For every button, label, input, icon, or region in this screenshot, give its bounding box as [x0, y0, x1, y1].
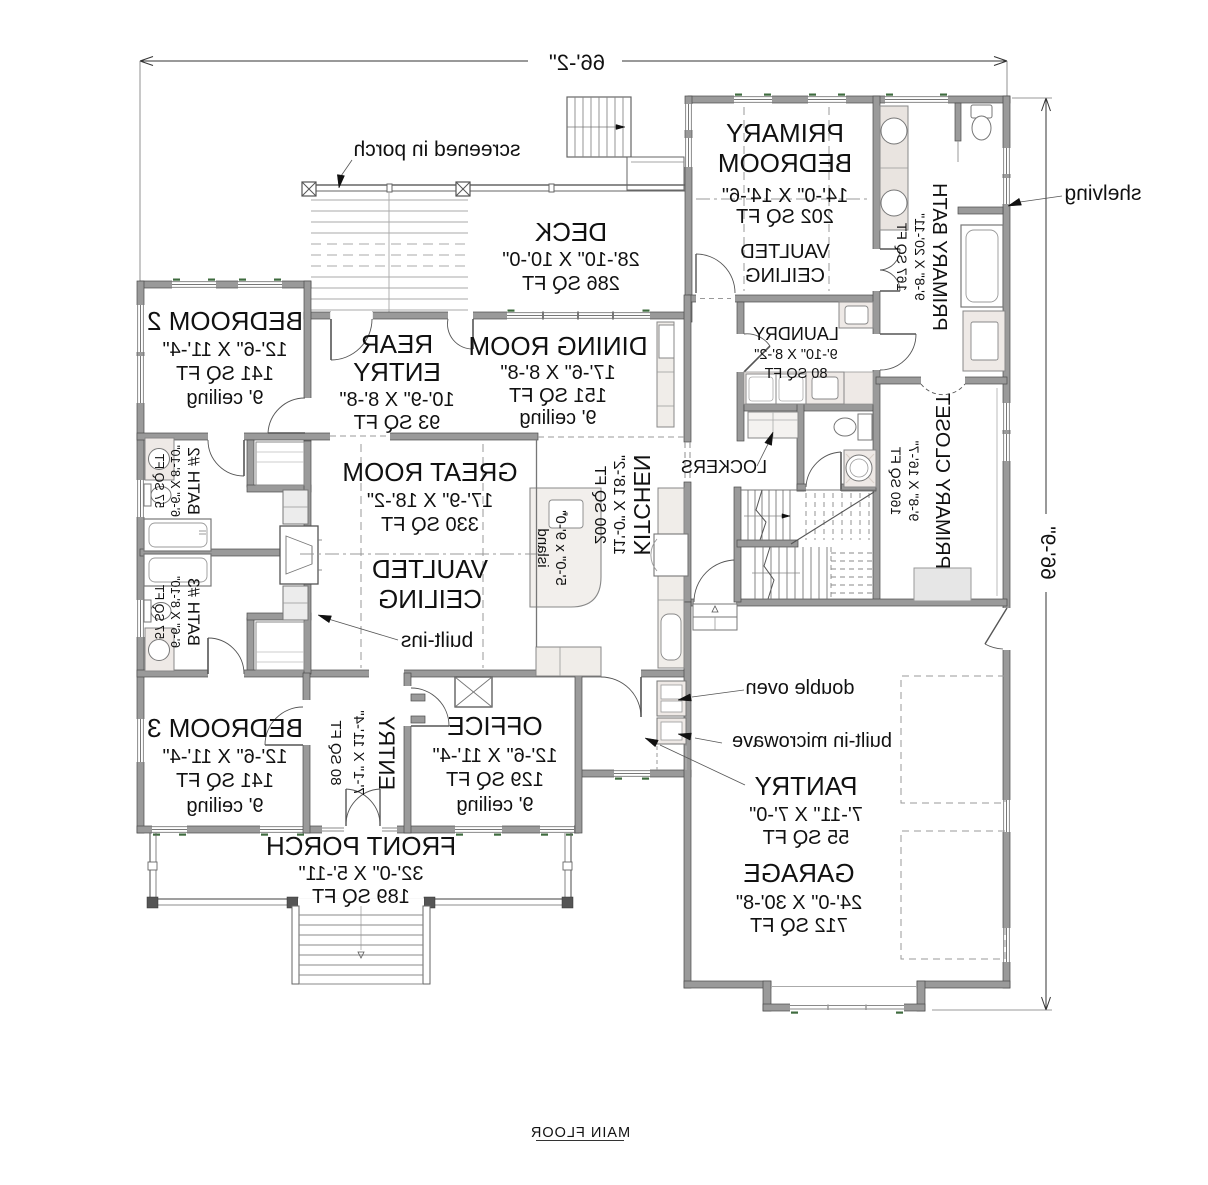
svg-text:BEDROOM 3: BEDROOM 3 [147, 713, 303, 743]
svg-text:PRIMARY: PRIMARY [726, 118, 844, 148]
svg-text:160 SQ FT: 160 SQ FT [888, 446, 904, 515]
svg-text:OFFICE: OFFICE [447, 711, 542, 741]
svg-text:LAUNDRY: LAUNDRY [753, 324, 839, 344]
svg-text:286 SQ FT: 286 SQ FT [522, 273, 620, 295]
svg-text:12'-6" X 11'-4": 12'-6" X 11'-4" [163, 746, 288, 768]
svg-text:PRIMARY BATH: PRIMARY BATH [928, 183, 950, 331]
svg-text:built-ins: built-ins [401, 629, 473, 652]
svg-text:9' ceiling: 9' ceiling [186, 795, 263, 817]
svg-text:28'-10" X 10'-0": 28'-10" X 10'-0" [502, 249, 639, 271]
svg-text:GREAT ROOM: GREAT ROOM [342, 457, 517, 487]
svg-text:CEILING: CEILING [378, 584, 482, 614]
svg-text:DINING ROOM: DINING ROOM [468, 331, 647, 361]
svg-text:167 SQ FT: 167 SQ FT [894, 222, 910, 291]
svg-text:DECK: DECK [534, 217, 607, 247]
svg-text:island: island [534, 528, 551, 567]
svg-text:17'-6" X 8'-8": 17'-6" X 8'-8" [500, 362, 615, 384]
svg-text:66'-2": 66'-2" [549, 50, 605, 75]
svg-text:9' ceiling: 9' ceiling [186, 387, 263, 409]
svg-text:202 SQ FT: 202 SQ FT [736, 206, 834, 228]
svg-text:7'-1" X 11'-4": 7'-1" X 11'-4" [350, 710, 367, 795]
svg-text:9'-8" X 16'-7": 9'-8" X 16'-7" [906, 441, 922, 522]
svg-text:200 SQ FT: 200 SQ FT [591, 466, 608, 544]
svg-text:ENTRY: ENTRY [374, 716, 399, 790]
svg-text:12'-6" X 11'-4": 12'-6" X 11'-4" [433, 745, 558, 767]
svg-text:VAULTED: VAULTED [372, 554, 488, 584]
svg-text:LOCKERS: LOCKERS [681, 457, 767, 477]
svg-text:9' ceiling: 9' ceiling [519, 407, 596, 429]
svg-text:14'-0" X 14'-6": 14'-0" X 14'-6" [722, 185, 848, 207]
svg-text:6'-6" X 8'-10": 6'-6" X 8'-10" [168, 576, 182, 648]
svg-text:GARAGE: GARAGE [743, 858, 854, 888]
svg-text:189 SQ FT: 189 SQ FT [312, 886, 410, 908]
svg-text:9'-10" X 8'-2": 9'-10" X 8'-2" [754, 347, 838, 363]
svg-text:7'-11" X 7'-0": 7'-11" X 7'-0" [749, 804, 863, 826]
svg-text:330 SQ FT: 330 SQ FT [381, 514, 479, 536]
svg-text:5'-0" x 9'-0": 5'-0" x 9'-0" [552, 510, 569, 586]
svg-text:151 SQ FT: 151 SQ FT [509, 385, 607, 407]
svg-text:CEILING: CEILING [745, 265, 825, 287]
svg-text:93 SQ FT: 93 SQ FT [354, 412, 441, 434]
svg-text:80 SQ FT: 80 SQ FT [327, 720, 344, 785]
svg-text:10'-9" X 8'-8": 10'-9" X 8'-8" [339, 389, 454, 411]
svg-text:24'-0" X 30'-8": 24'-0" X 30'-8" [736, 892, 862, 914]
svg-text:screened in porch: screened in porch [354, 138, 521, 161]
svg-text:double oven: double oven [746, 677, 855, 699]
svg-text:712 SQ FT: 712 SQ FT [750, 915, 848, 937]
svg-text:9'-8" X 20'-11": 9'-8" X 20'-11" [912, 213, 928, 300]
svg-text:129 SQ FT: 129 SQ FT [446, 769, 544, 791]
svg-text:PRIMARY CLOSET: PRIMARY CLOSET [931, 393, 953, 569]
svg-text:141 SQ FT: 141 SQ FT [176, 770, 274, 792]
svg-text:BATH #2: BATH #2 [184, 447, 203, 515]
svg-text:9' ceiling: 9' ceiling [456, 794, 533, 816]
svg-text:12'-6" X 11'-4": 12'-6" X 11'-4" [163, 339, 288, 361]
svg-text:REAR: REAR [361, 329, 433, 359]
svg-text:KITCHEN: KITCHEN [629, 455, 655, 556]
svg-text:66'-9": 66'-9" [1036, 526, 1059, 580]
svg-text:built-in microwave: built-in microwave [732, 730, 892, 752]
svg-text:11'-0" X 18'-2": 11'-0" X 18'-2" [610, 455, 627, 555]
svg-text:141 SQ FT: 141 SQ FT [176, 363, 274, 385]
svg-text:shelving: shelving [1064, 182, 1141, 205]
svg-text:BATH #3: BATH #3 [184, 578, 203, 646]
svg-text:55 SQ FT: 55 SQ FT [763, 827, 850, 849]
svg-text:BEDROOM: BEDROOM [718, 148, 852, 178]
svg-text:ENTRY: ENTRY [353, 357, 441, 387]
svg-text:VAULTED: VAULTED [740, 241, 829, 263]
svg-text:17'-9" X 18'-2": 17'-9" X 18'-2" [367, 490, 493, 512]
svg-text:57 SQ FT: 57 SQ FT [152, 454, 166, 509]
svg-text:BEDROOM 2: BEDROOM 2 [147, 306, 303, 336]
svg-text:32'-0" X 5'-11": 32'-0" X 5'-11" [299, 863, 424, 885]
svg-text:PANTRY: PANTRY [754, 771, 857, 801]
svg-text:6'-6" X 8'-10": 6'-6" X 8'-10" [168, 445, 182, 517]
svg-text:MAIN FLOOR: MAIN FLOOR [530, 1125, 630, 1141]
svg-text:80 SQ FT: 80 SQ FT [764, 366, 827, 382]
svg-text:57 SQ FT: 57 SQ FT [152, 585, 166, 640]
svg-text:FRONT PORCH: FRONT PORCH [266, 831, 456, 861]
